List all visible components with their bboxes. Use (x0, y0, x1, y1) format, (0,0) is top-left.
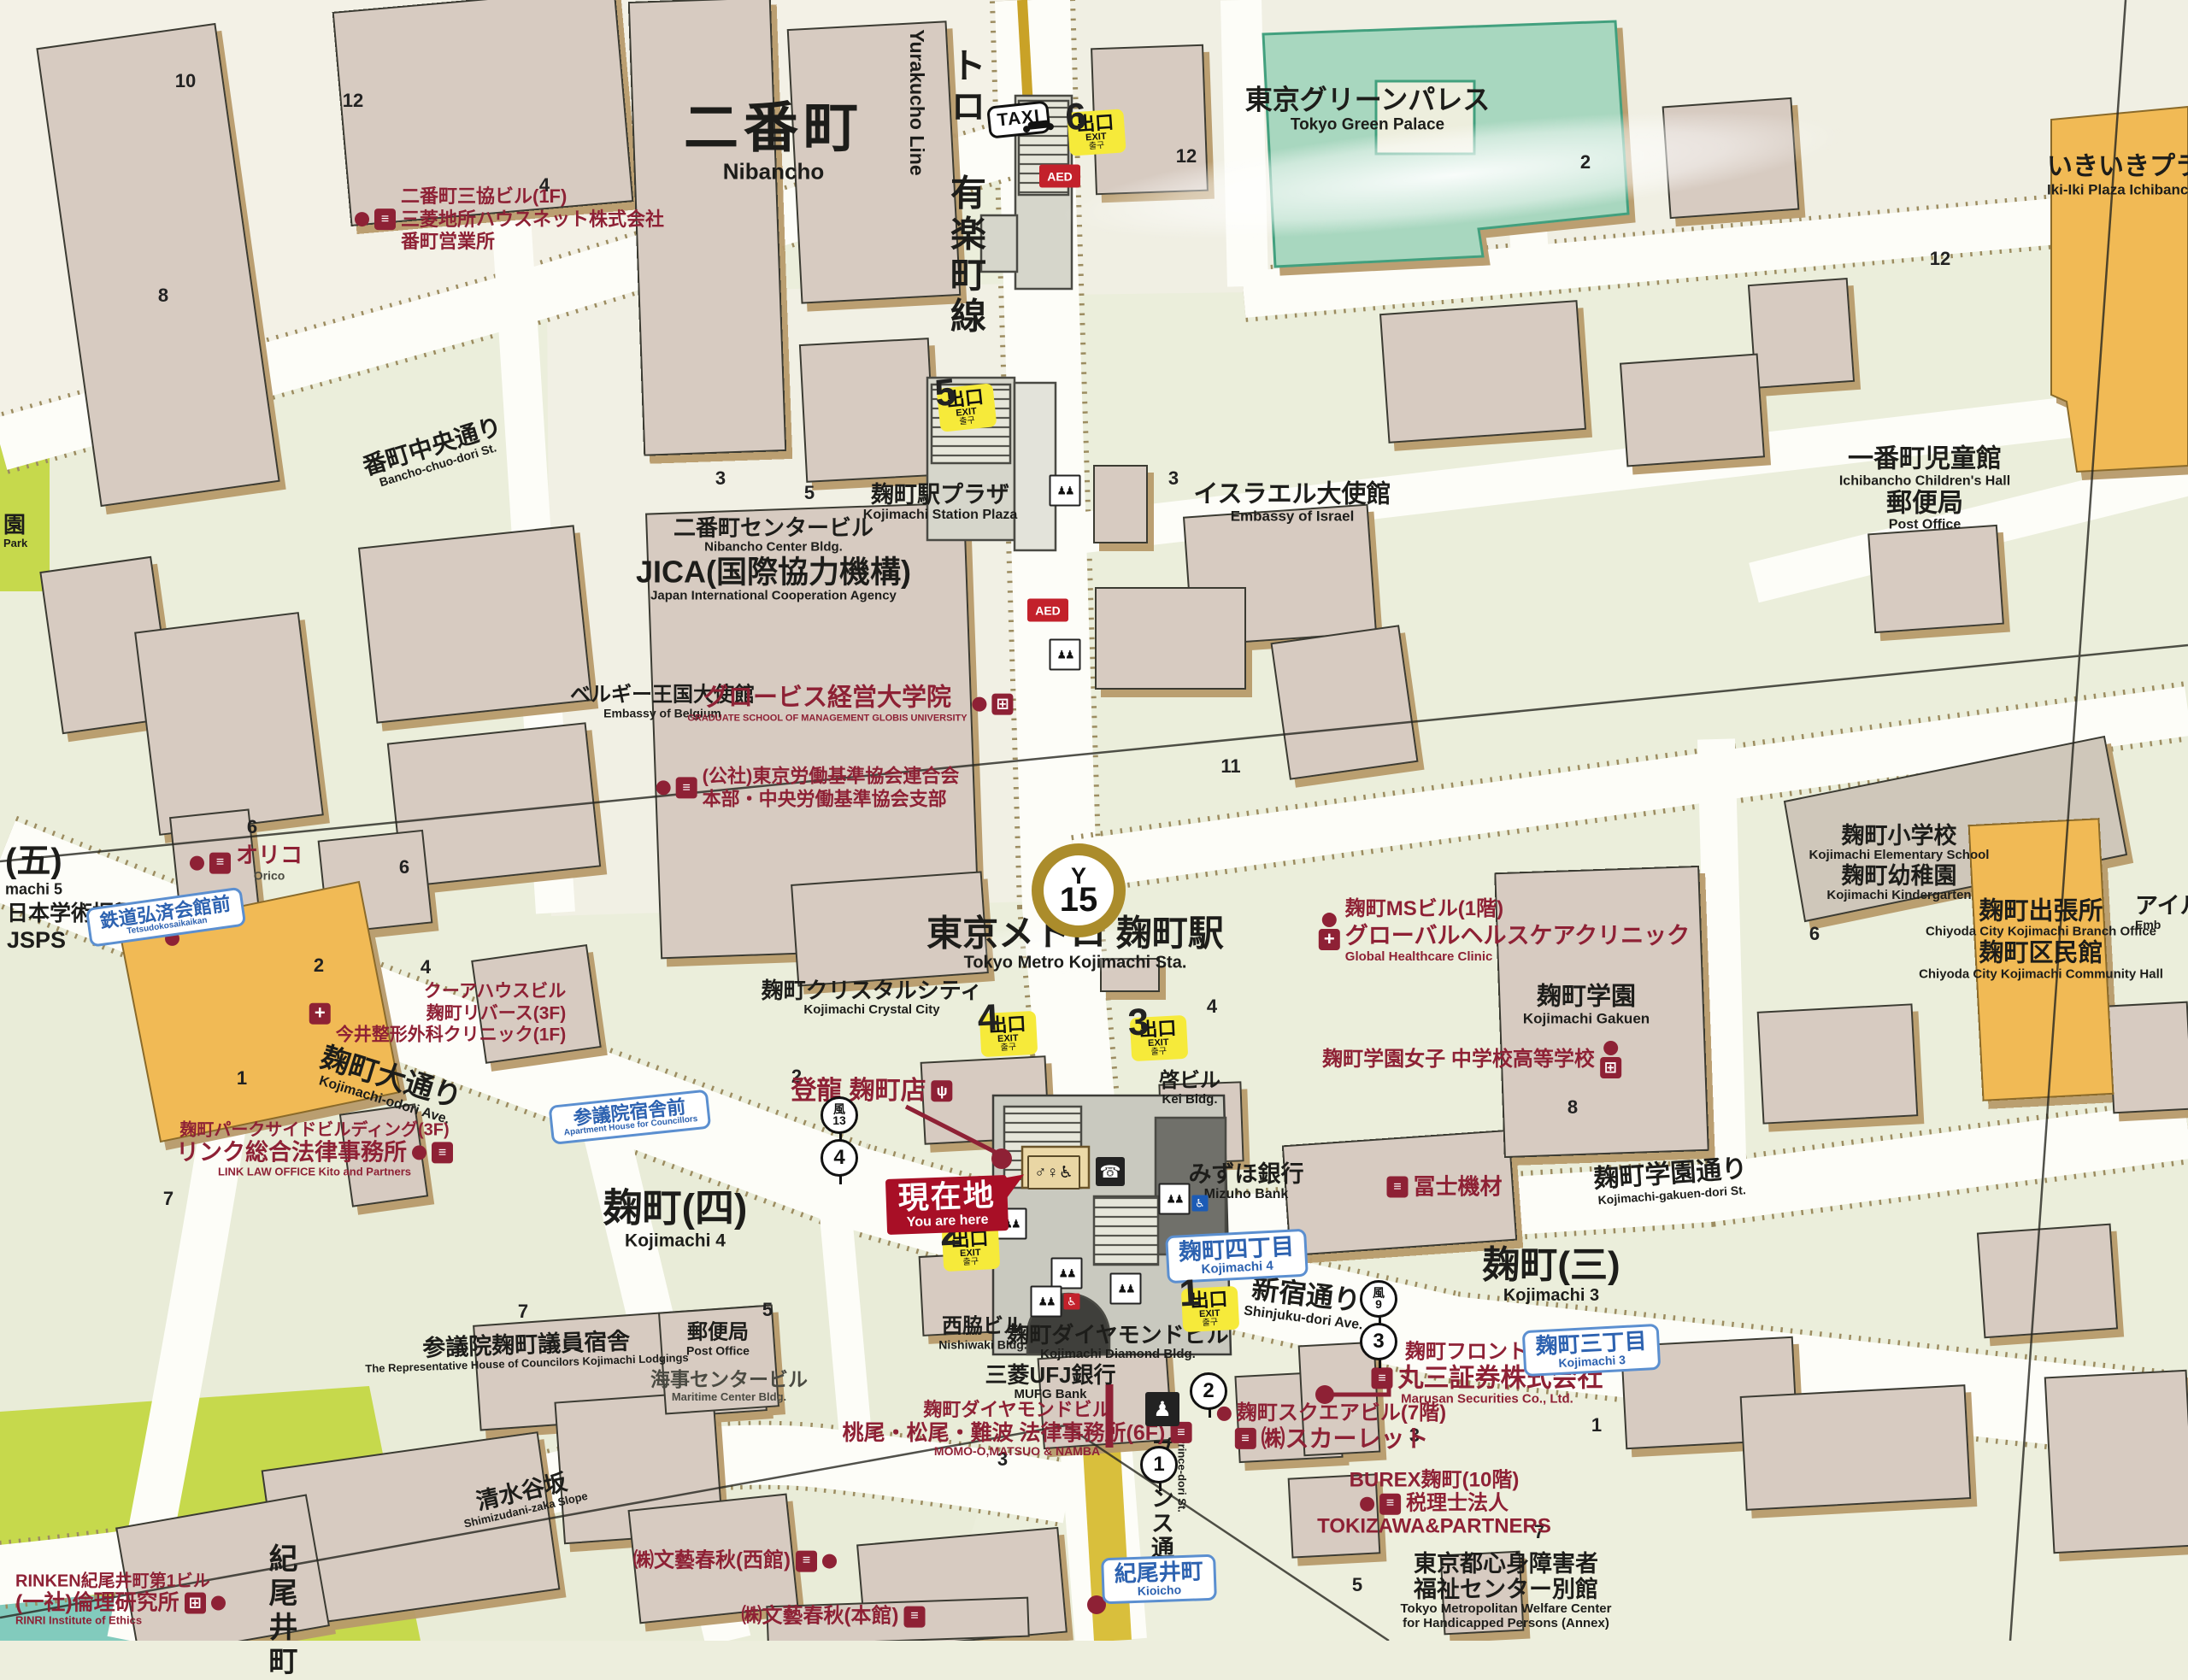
public-phone-icon: ☎ (1096, 1157, 1125, 1186)
block-number: 11 (1220, 755, 1240, 778)
accessible-route-icon: ♿ (1192, 1195, 1209, 1212)
business-icon (1234, 1428, 1256, 1449)
school-icon (992, 694, 1014, 715)
iki-iki-plaza: いきいきプラザ一番町 Iki-Iki Plaza Ichibancho (2047, 153, 2188, 198)
location-dot (1360, 1497, 1374, 1512)
mufg-bank: 三菱UFJ銀行 MUFG Bank (985, 1363, 1115, 1402)
block-number: 2 (1580, 151, 1591, 173)
elevator-icon: ♟♟ (1050, 639, 1081, 671)
district-kioicho-vertical: 紀尾井町 (264, 1543, 297, 1680)
bus-stop-circle-2: 2 (1190, 1372, 1227, 1410)
yurakucho-line-label-jp: トロ 有楽町線 (945, 47, 985, 338)
school-icon (1600, 1057, 1621, 1078)
business-icon (903, 1607, 925, 1628)
location-dot (822, 1554, 837, 1569)
district-kojimachi-3: 麹町(三) Kojimachi 3 (1482, 1244, 1620, 1306)
toryu-restaurant: 登龍 麹町店 (791, 1077, 952, 1106)
block-number: 5 (804, 482, 815, 504)
police-box-icon: ♟ (1145, 1392, 1179, 1426)
you-are-here-marker: 現在地You are here (885, 1175, 1009, 1235)
exit-1-badge: 出口EXIT출구 1 (1181, 1286, 1240, 1332)
block-number: 4 (421, 956, 431, 978)
kua-house-imai-clinic: クーアハウスビル 麹町リバース(3F) 今井整形外科クリニック(1F) (309, 982, 567, 1046)
block-number: 2 (314, 955, 324, 977)
kojimachi-crystal-city: 麹町クリスタルシティ Kojimachi Crystal City (762, 978, 982, 1018)
location-dot (211, 1595, 226, 1610)
block-number: 7 (518, 1301, 528, 1323)
elevator-icon: ♟♟ (1031, 1286, 1062, 1318)
block-number: 5 (1352, 1574, 1362, 1596)
block-number: 3 (715, 467, 726, 490)
block-number: 12 (1930, 248, 1950, 270)
rinken-rinri-institute: RINKEN紀尾井町第1ビル (一社)倫理研究所 RINRI Institute… (15, 1572, 226, 1628)
elevator-icon: ♟♟ (1050, 475, 1081, 507)
nibancho-center-jica: 二番町センタービル Nibancho Center Bldg. JICA(国際協… (636, 515, 911, 603)
business-icon (676, 778, 697, 799)
aed-icon: AED (1039, 165, 1080, 188)
exit-6-badge: 出口EXIT출구 6 (1067, 109, 1126, 156)
exit-4-badge: 出口EXIT출구 4 (979, 1011, 1038, 1057)
link-law-office: 麹町パークサイドビルディング(3F) リンク総合法律事務所 LINK LAW O… (176, 1120, 453, 1178)
kei-bldg: 啓ビル Kei Bldg. (1159, 1070, 1220, 1107)
tokyo-labor-standards-assoc: (公社)東京労働基準協会連合会 本部・中央労働基準協会支部 (656, 766, 960, 809)
location-dot (1603, 1041, 1618, 1055)
block-number: 6 (247, 816, 257, 838)
block-number: 7 (163, 1188, 174, 1210)
clinic-icon (1319, 929, 1340, 950)
elevator-icon: ♟♟ (1051, 1258, 1083, 1289)
kojimachi-branch-office-community-hall: 麹町出張所 Chiyoda City Kojimachi Branch Offi… (1919, 898, 2163, 983)
block-number: 3 (1168, 467, 1179, 490)
fuji-kizai: 冨士機材 (1386, 1174, 1502, 1199)
elevator-icon: ♟♟ (1110, 1273, 1142, 1305)
embassy-of-israel: イスラエル大使館 Embassy of Israel (1193, 480, 1391, 525)
location-dot (656, 781, 671, 796)
signpost-kioicho: 紀尾井町Kioicho (1101, 1554, 1217, 1605)
block-number: 8 (1567, 1096, 1578, 1119)
elevator-icon: ♟♟ (1159, 1184, 1191, 1215)
business-icon (432, 1142, 453, 1163)
kojimachi-gakuen-girls-school: 麹町学園女子 中学校高等学校 (1322, 1041, 1621, 1078)
business-icon (209, 853, 231, 874)
business-icon (1372, 1368, 1393, 1389)
block-number: 1 (1591, 1414, 1602, 1436)
block-number: 6 (1809, 923, 1820, 945)
embassy-of-ireland-partial: アイル Emb (2135, 893, 2188, 932)
clinic-icon (309, 1002, 331, 1024)
kojimachi-gakuen: 麹町学園 Kojimachi Gakuen (1523, 983, 1650, 1027)
signpost-kojimachi-3: 麹町三丁目Kojimachi 3 (1522, 1324, 1662, 1377)
bus-stop-circles-kaze9-3: 風9 3 (1360, 1280, 1397, 1360)
nibancho-sankyo-bldg: 二番町三協ビル(1F) 三菱地所ハウスネット株式会社 番町営業所 (355, 186, 664, 253)
restaurant-icon (932, 1081, 953, 1102)
globis-university: グロービス経営大学院 GRADUATE SCHOOL OF MANAGEMENT… (687, 684, 1013, 725)
welfare-center-annex: 東京都心身障害者 福祉センター別館 Tokyo Metropolitan Wel… (1401, 1551, 1612, 1631)
orico: オリコ Orico (190, 843, 303, 884)
location-dot (190, 856, 204, 871)
block-number: 1 (237, 1067, 247, 1090)
yurakucho-line-label-en: Yurakucho Line (905, 29, 927, 175)
station-roundel-y15: Y15 (1032, 843, 1126, 937)
school-icon (185, 1592, 206, 1613)
bungei-shunju-west: ㈱文藝春秋(西館) (633, 1550, 837, 1573)
block-number: 4 (1207, 996, 1217, 1018)
business-icon (796, 1551, 817, 1572)
block-number: 8 (158, 285, 168, 307)
district-nibancho: 二番町 Nibancho (684, 98, 863, 185)
block-number: 5 (762, 1299, 773, 1321)
location-dot (412, 1145, 426, 1160)
block-number: 10 (175, 70, 196, 92)
block-number: 6 (399, 856, 409, 878)
kojimachi-square-scarlet: 麹町スクエアビル(7階) ㈱スカーレット (1217, 1402, 1446, 1452)
bus-stop-circle-1: 1 (1140, 1446, 1178, 1483)
district-kojimachi-4: 麹町(四) Kojimachi 4 (603, 1186, 748, 1250)
tokyo-green-palace: 東京グリーンパレス Tokyo Green Palace (1245, 85, 1490, 133)
exit-5-badge: 出口EXIT출구 5 (937, 383, 997, 432)
kojimachi-elementary-kindergarten: 麹町小学校 Kojimachi Elementary School 麹町幼稚園 … (1809, 823, 1990, 903)
kojimachi-station-area-map: { "station": {"line_v_jp":"トロ 有楽町線","lin… (0, 0, 2188, 1641)
aed-icon: AED (1027, 599, 1068, 622)
business-icon (1379, 1494, 1401, 1515)
district-kojimachi-5-partial: (五) machi 5 (5, 843, 62, 898)
exit-3-badge: 出口EXIT출구 3 (1130, 1015, 1189, 1061)
bus-stop-circles-kaze13-4: 風13 4 (820, 1096, 858, 1177)
park-label-partial: 園 Park (3, 513, 27, 550)
burex-tokizawa: BUREX麹町(10階) 税理士法人 TOKIZAWA&PARTNERS (1317, 1470, 1551, 1539)
block-number: 12 (1176, 145, 1197, 167)
taxi-stand-badge: TAXI (986, 100, 1051, 138)
location-dot (973, 697, 987, 712)
maritime-center-bldg: 海事センタービル Maritime Center Bldg. (650, 1369, 808, 1403)
block-number: 12 (343, 90, 363, 112)
business-icon (374, 209, 396, 231)
accessible-toilet-icon: ♿ (1064, 1294, 1080, 1310)
post-office-west: 郵便局 Post Office (686, 1322, 750, 1359)
bungei-shunju-main: ㈱文藝春秋(本館) (742, 1606, 926, 1629)
business-icon (1386, 1176, 1408, 1197)
location-dot (1322, 913, 1337, 927)
location-dot (355, 213, 369, 227)
global-healthcare-clinic: 麹町MSビル(1階) グローバルヘルスケアクリニック Global Health… (1319, 898, 1690, 965)
ichibancho-childrens-hall: 一番町児童館 Ichibancho Children's Hall 郵便局 Po… (1839, 445, 2010, 533)
